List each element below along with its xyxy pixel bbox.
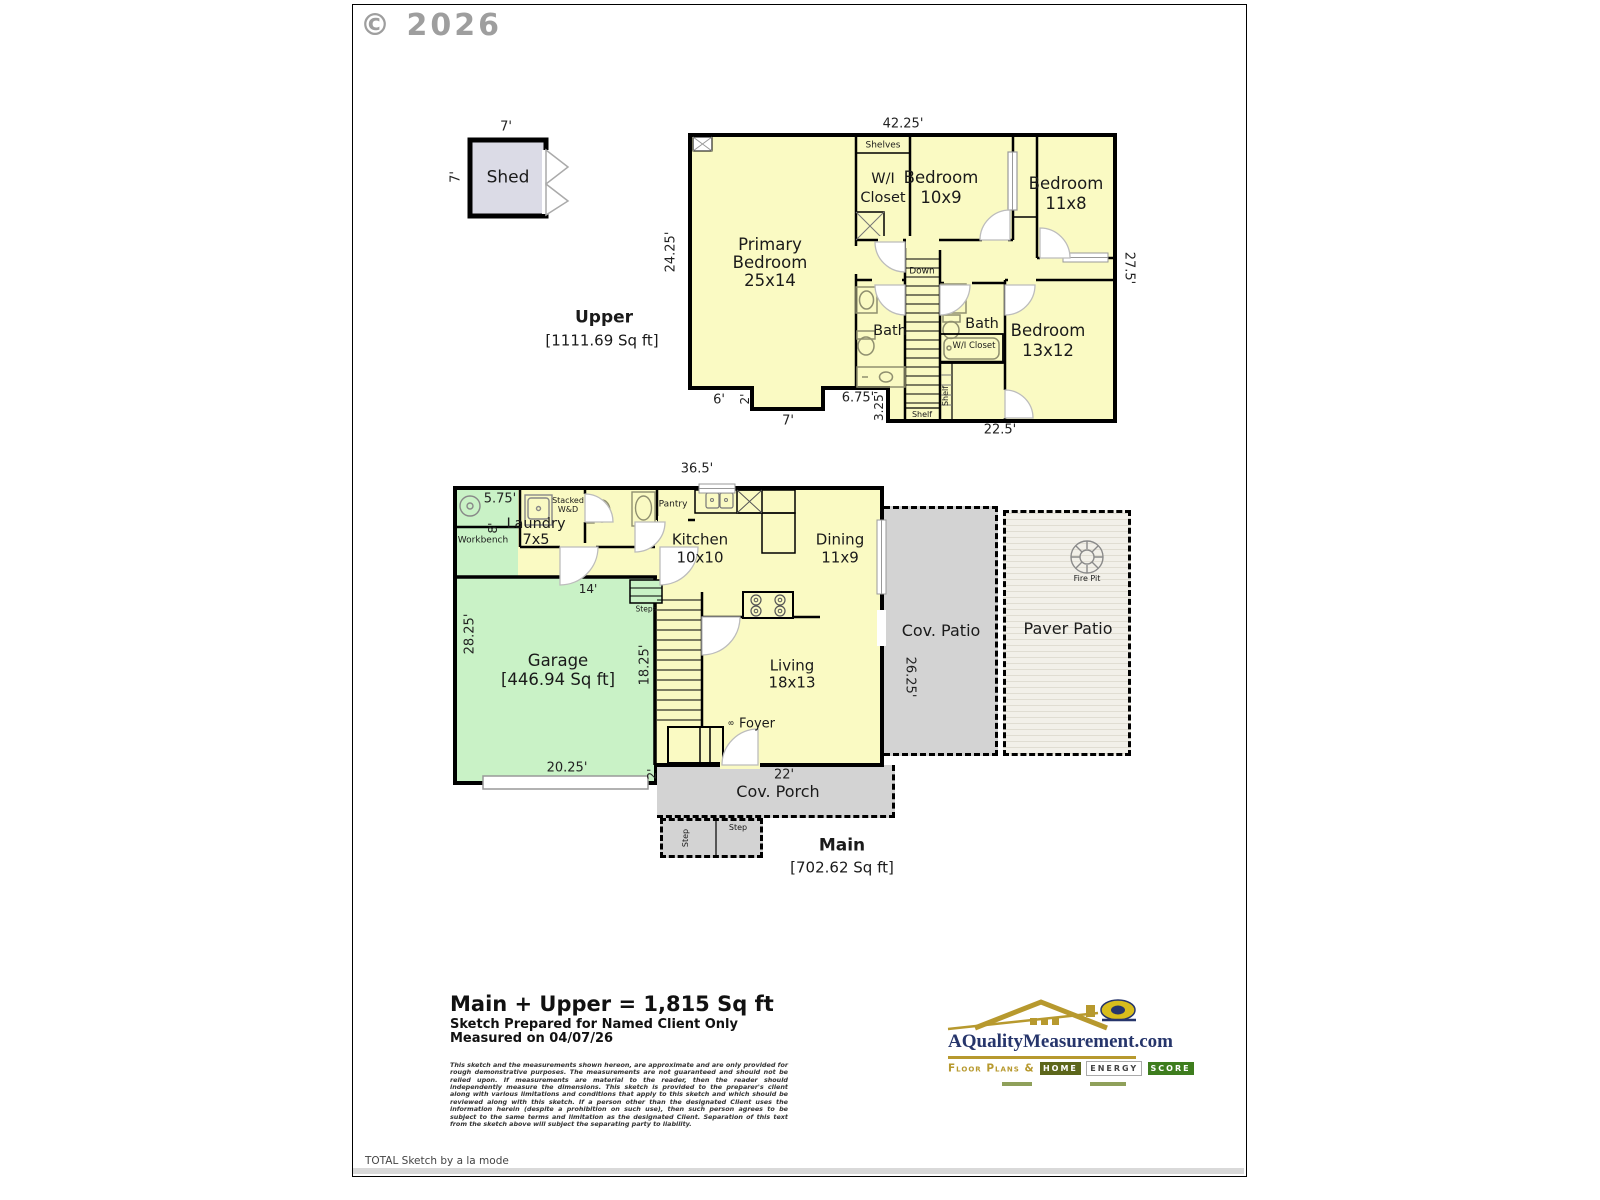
upper-dim-225: 22.5' [984,424,1017,437]
bedroom-10x9-size: 10x9 [920,190,961,207]
bath-left-label: Bath [873,324,907,339]
bedroom-10x9-label: Bedroom [904,170,979,187]
upper-dim-675: 6.75' [842,392,875,405]
covered-porch-label: Cov. Porch [736,784,819,800]
pantry-label: Pantry [659,501,688,510]
upper-dim-top: 42.25' [883,118,924,131]
logo-art [948,1000,1136,1029]
prepared-for-line: Sketch Prepared for Named Client Only [450,1017,738,1032]
main-sqft: [702.62 Sq ft] [790,861,894,876]
kitchen-size: 10x10 [676,551,723,566]
logo-tagline: Floor Plans & [948,1063,1035,1075]
step-label-left: Step [682,829,690,847]
logo-site-name: AQualityMeasurement.com [948,1031,1173,1053]
shelf-side-label: Shelf [942,386,950,406]
stacked-wd-label: Stacked [552,497,584,505]
bedroom-13x12-size: 13x12 [1022,343,1074,360]
porch-dim: 22' [774,769,794,782]
garage-sqft: [446.94 Sq ft] [501,672,615,689]
shelf-bottom-label: Shelf [912,411,932,419]
covered-patio-label: Cov. Patio [902,623,981,639]
shelves-label: Shelves [865,142,900,151]
dining-size: 11x9 [821,551,859,566]
dining-label: Dining [816,533,864,548]
logo-divider [948,1056,1136,1059]
home-energy-score-badge: HOME [1040,1062,1081,1075]
shed-dim-side: 7' [450,171,463,183]
primary-bedroom-size: 25x14 [744,273,796,290]
main-dim-2: 2' [646,769,658,780]
step-label-right: Step [729,824,747,832]
upper-dim-left: 24.25' [665,232,678,273]
wi-closet-small-label: W/I Closet [953,342,996,351]
kitchen-label: Kitchen [672,533,728,548]
main-dim-8: 8' [487,523,499,534]
logo-sub-badge [1002,1082,1032,1086]
upper-dim-6: 6' [713,394,725,407]
stairs-down-label: Down [909,268,935,277]
main-dim-2825: 28.25' [464,614,477,655]
bedroom-11x8-label: Bedroom [1029,176,1104,193]
primary-bedroom-label: Bedroom [733,255,808,272]
upper-title: Upper [575,310,633,327]
laundry-size: 7x5 [522,533,549,548]
floorplan-sketch-page: © 2026 Shed 7' 7' 42.25' 24.25' 27.5' Pr… [0,0,1600,1200]
foyer-closet-dim: 8 [729,721,736,725]
laundry-label: Laundry [506,517,565,532]
main-dim-top: 36.5' [681,463,714,476]
main-title: Main [819,838,865,855]
stacked-wd-label: W&D [558,506,578,514]
main-dim-1825: 18.25' [639,645,652,686]
floorplan-drawing [0,0,1600,1200]
fire-pit-icon [1071,541,1103,573]
copyright-year: © 2026 [360,8,502,43]
upper-dim-2: 2' [739,394,751,405]
upper-dim-325: 3.25' [873,391,885,421]
upper-dim-right: 27.5' [1123,252,1136,285]
fire-pit-label: Fire Pit [1074,575,1101,583]
logo-sub-badge [1090,1082,1126,1086]
main-dim-14: 14' [579,583,598,595]
disclaimer-text: This sketch and the measurements shown h… [450,1062,788,1128]
wi-closet-label: Closet [860,191,905,206]
steps-label: Steps [636,605,657,613]
living-size: 18x13 [768,676,815,691]
living-label: Living [770,659,815,674]
patio-dim-2625: 26.25' [904,657,917,698]
software-brand-footer: TOTAL Sketch by a la mode [365,1155,509,1167]
upper-sqft: [1111.69 Sq ft] [545,334,658,349]
garage-label: Garage [528,653,588,670]
logo-tagline-row: Floor Plans & HOME ENERGY SCORE [948,1061,1194,1076]
paver-patio-label: Paver Patio [1024,621,1113,637]
bath-right-label: Bath [965,317,999,332]
wi-closet-label: W/I [871,172,895,187]
main-dim-575: 5.75' [484,493,517,506]
primary-bedroom-label: Primary [738,237,802,254]
shed-dim-top: 7' [500,121,512,134]
bedroom-13x12-label: Bedroom [1011,323,1086,340]
main-dim-2025: 20.25' [547,762,588,775]
home-energy-score-badge: SCORE [1148,1062,1194,1075]
bedroom-11x8-size: 11x8 [1045,196,1086,213]
measured-date-line: Measured on 04/07/26 [450,1031,613,1046]
foyer-label: Foyer [739,718,775,731]
home-energy-score-badge: ENERGY [1086,1061,1142,1076]
upper-dim-7: 7' [782,415,794,428]
total-sqft-summary: Main + Upper = 1,815 Sq ft [450,992,774,1016]
workbench-label: Workbench [458,537,508,546]
shed-label: Shed [487,170,530,187]
